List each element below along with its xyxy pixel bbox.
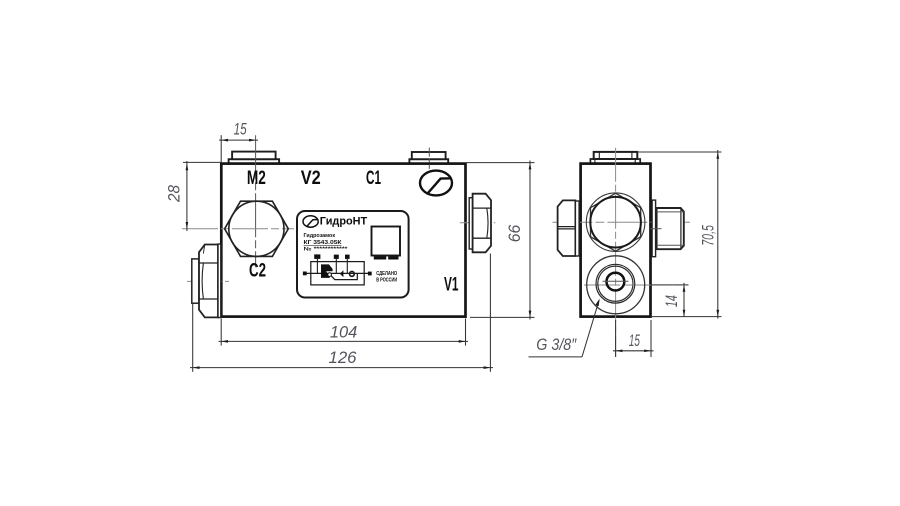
- svg-text:28: 28: [165, 185, 184, 203]
- svg-text:ГидроНТ: ГидроНТ: [320, 216, 367, 228]
- svg-text:126: 126: [329, 348, 358, 367]
- svg-text:66: 66: [505, 224, 524, 242]
- svg-text:14: 14: [662, 295, 681, 307]
- svg-text:V2: V2: [301, 168, 321, 189]
- svg-text:70,5: 70,5: [699, 225, 718, 246]
- svg-text:15: 15: [629, 331, 640, 350]
- svg-text:C1: C1: [366, 168, 381, 189]
- svg-text:V1: V1: [444, 275, 459, 296]
- svg-text:C2: C2: [249, 260, 266, 281]
- svg-text:G 3/8″: G 3/8″: [536, 335, 577, 354]
- svg-text:№ ************: № ************: [304, 247, 349, 253]
- svg-text:104: 104: [330, 323, 358, 342]
- svg-text:КГ 3543.05К: КГ 3543.05К: [304, 240, 343, 246]
- svg-text:Гидрозамок: Гидрозамок: [304, 233, 336, 239]
- svg-text:M2: M2: [247, 168, 266, 189]
- svg-text:15: 15: [234, 119, 247, 138]
- svg-text:СДЕЛАНО: СДЕЛАНО: [376, 271, 397, 277]
- svg-text:В РОССИИ: В РОССИИ: [376, 277, 397, 283]
